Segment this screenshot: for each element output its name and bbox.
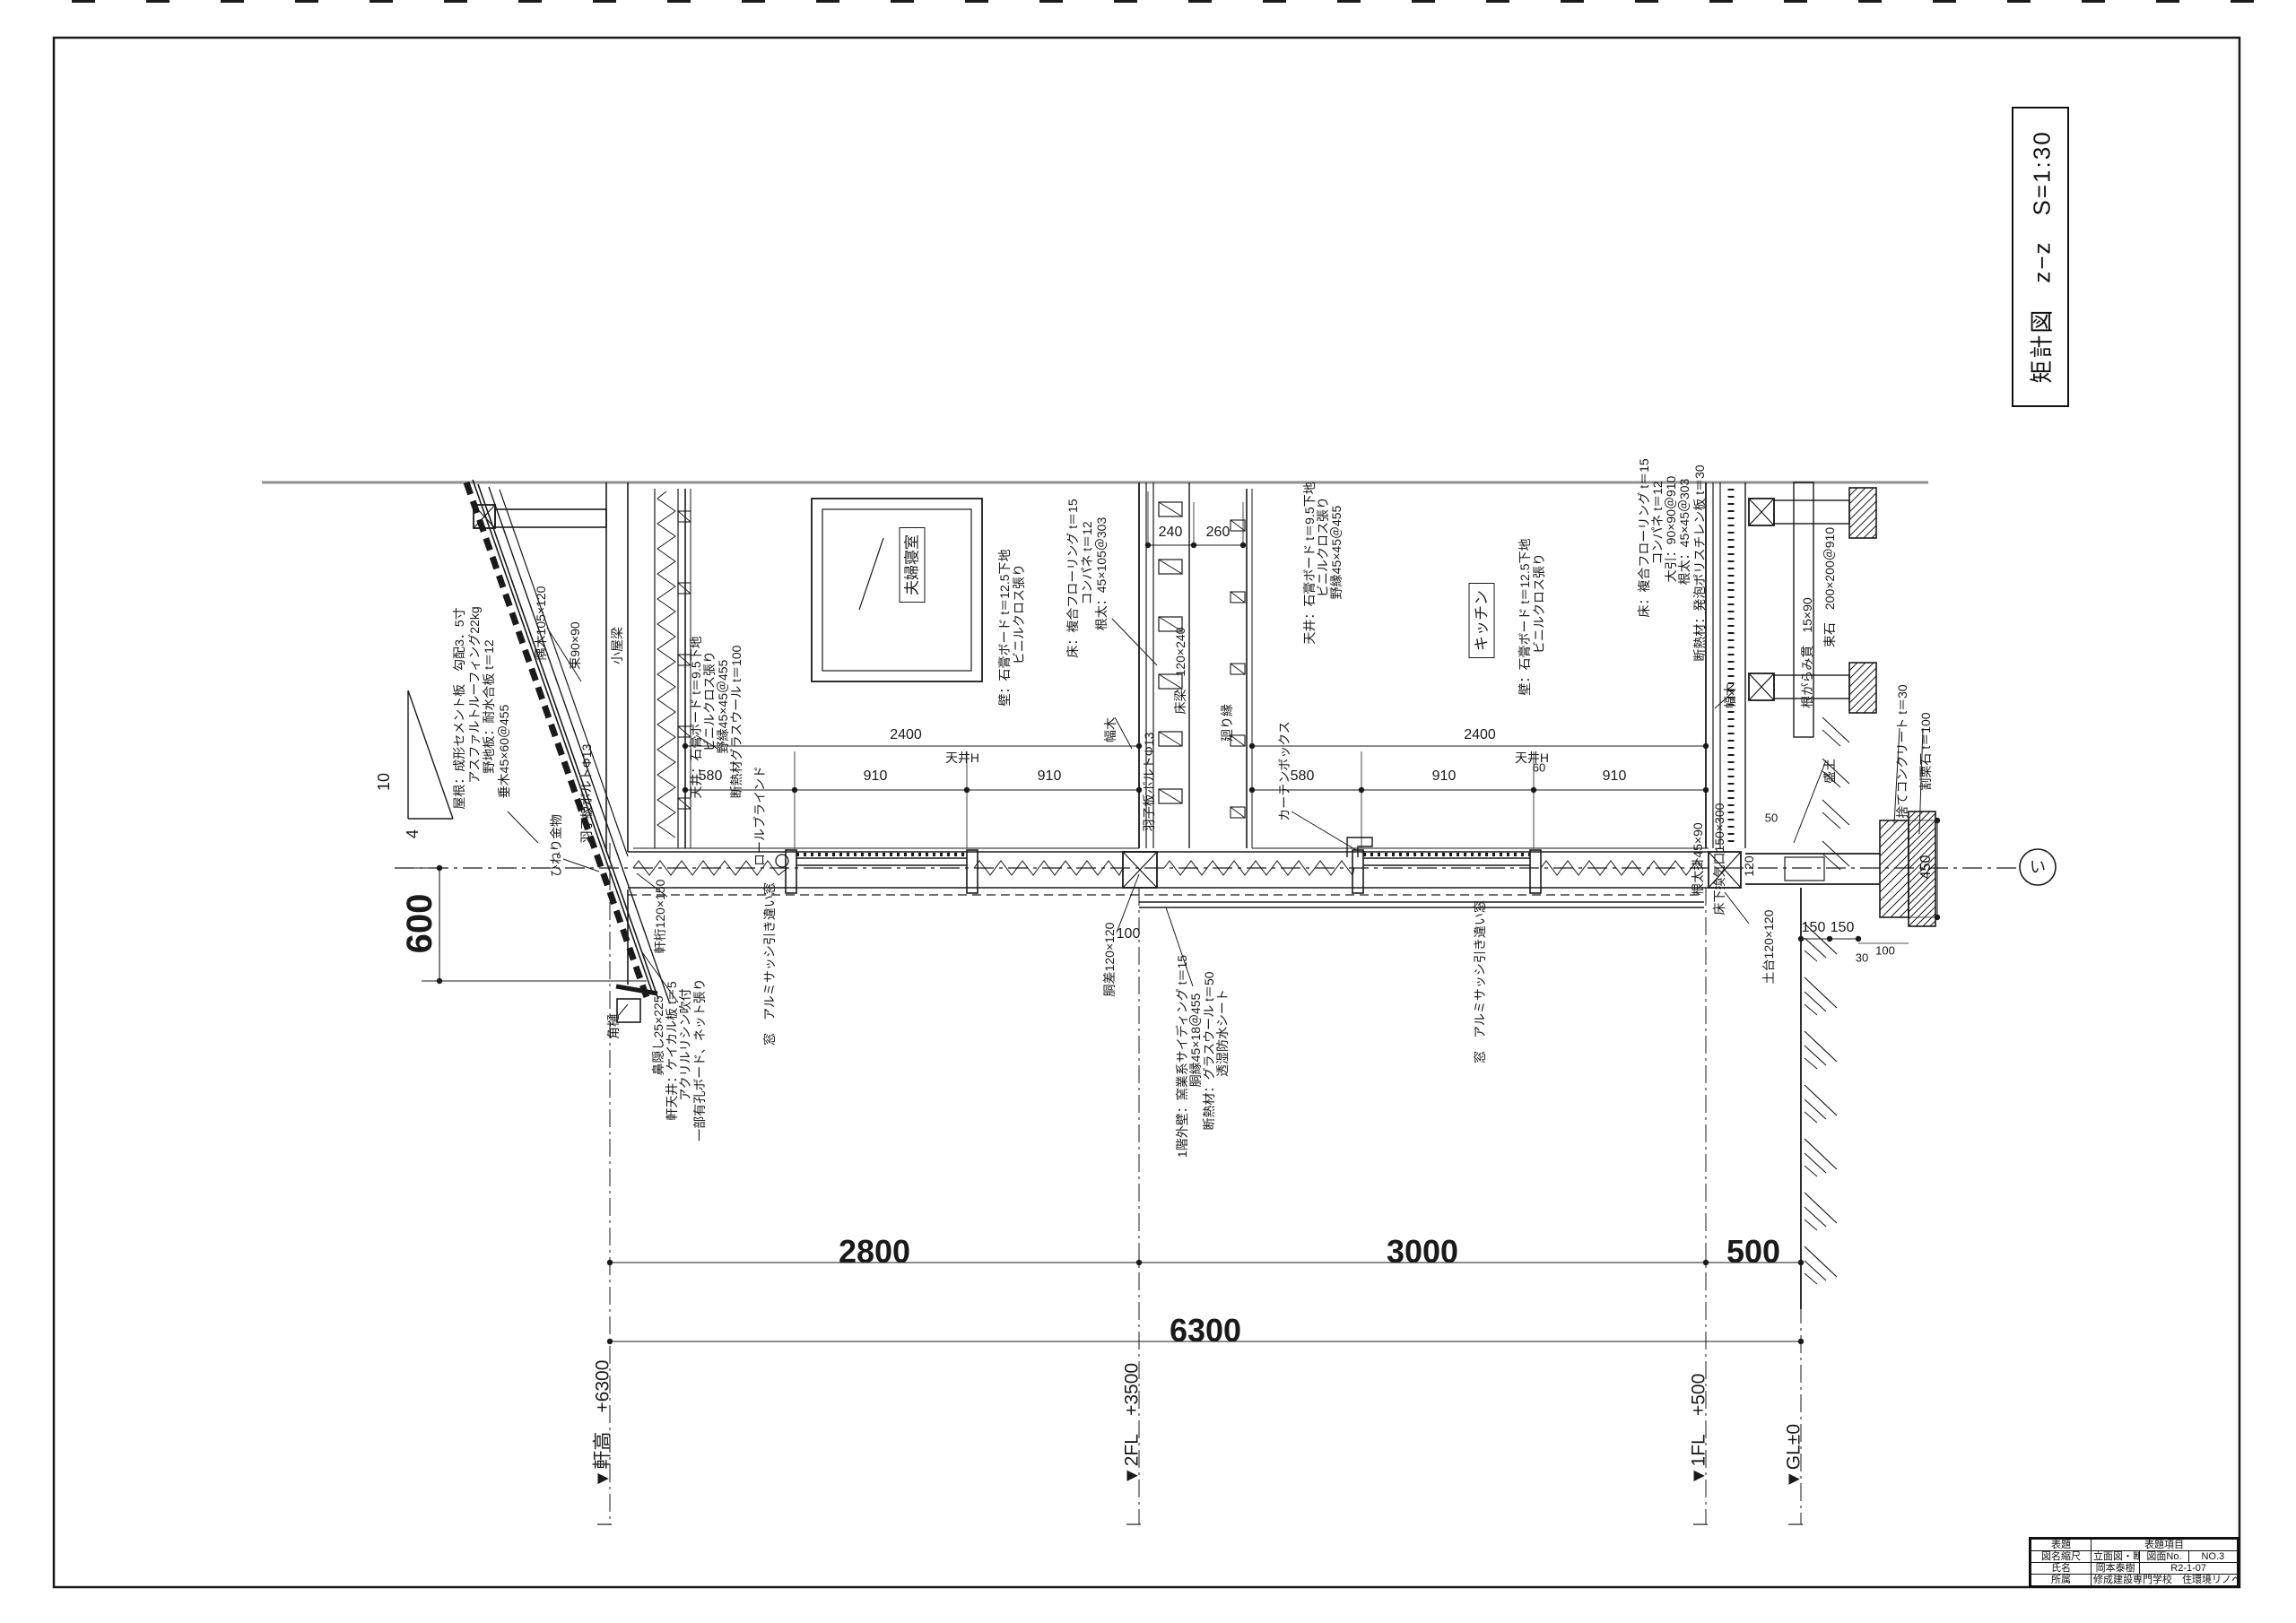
annotation-label: 床：複合フローリング t＝15	[1066, 499, 1079, 657]
annotation-label: 壁：石膏ボード t＝12.5下地	[998, 549, 1011, 706]
annotation-label: 盛土	[1823, 759, 1836, 784]
annotation-label: 大引：90×90＠910	[1665, 476, 1677, 583]
tb-value-cell: 表題項目	[2092, 1540, 2238, 1551]
annotation-label: 束90×90	[569, 621, 581, 669]
tb-value-cell: 修成建設専門学校 住環境リノベーション学科	[2092, 1575, 2238, 1586]
annotation-label: 根がらみ貫 15×90	[1801, 597, 1813, 707]
tb-value-cell: NO.3	[2188, 1551, 2237, 1563]
annotation-label: ▼軒高 +6300	[594, 1360, 613, 1488]
drawing-sheet: 矩計図 z−z S=1:30 屋根：成形セメント板 勾配3．5寸アスファルトルー…	[0, 0, 2296, 1623]
annotation-label: 窓 アルミサッシ引き違い窓	[1474, 900, 1486, 1063]
annotation-label: ▼GL±0	[1785, 1424, 1804, 1488]
annotation-label: 軒桁120×150	[654, 880, 666, 954]
annotation-label: 580	[699, 769, 723, 784]
annotation-label: 120	[1743, 855, 1755, 876]
annotation-label: 断熱材：発泡ポリスチレン板 t＝30	[1693, 464, 1706, 661]
tb-header-cell: 所属	[2031, 1575, 2092, 1586]
annotation-label: 910	[1038, 769, 1062, 784]
tb-value-cell: 岡本泰樹	[2092, 1563, 2140, 1575]
annotation-label: カーテンボックス	[1278, 721, 1291, 821]
annotation-label: 胴縁45×18＠455	[1189, 994, 1202, 1088]
annotation-label: ビニルクロス張り	[703, 651, 716, 751]
annotation-label: 廻り縁	[1221, 704, 1233, 742]
annotation-label: 鼻隠し25×225	[652, 995, 665, 1075]
annotation-label: 600	[402, 894, 438, 954]
annotation-label: 野縁45×45＠455	[717, 660, 729, 754]
tb-header-cell: 氏名	[2031, 1563, 2092, 1575]
tb-header-cell: 図面No.	[2140, 1551, 2188, 1563]
annotation-label: 窓 アルミサッシ引き違い窓	[763, 882, 776, 1046]
annotation-label: 260	[1206, 525, 1231, 540]
annotation-label: 450	[1919, 855, 1934, 880]
room-label: 夫婦寝室	[900, 527, 926, 603]
annotation-label: 床梁 120×240	[1174, 628, 1187, 715]
annotation-label: い	[2030, 859, 2046, 875]
annotation-label: 小屋梁	[611, 627, 623, 664]
annotation-label: 根太：45×105＠303	[1095, 517, 1108, 630]
annotation-label: 2400	[890, 728, 922, 742]
annotation-label: 野地板：耐水合板 t＝12	[483, 639, 495, 773]
annotation-label: 胴差120×120	[1103, 923, 1116, 997]
annotation-label: 床下換気口150×300	[1713, 803, 1726, 916]
annotation-label: 垂木45×60＠455	[498, 705, 510, 799]
annotation-label: 580	[1291, 769, 1315, 784]
annotation-label: 50	[1765, 812, 1778, 824]
annotation-label: 天井：石膏ボード t＝9.5下地	[1303, 482, 1316, 644]
annotation-label: 壁：石膏ボード t＝12.5下地	[1518, 538, 1531, 695]
annotation-label: ロールブラインド	[753, 766, 766, 866]
annotation-label: 1階外壁：窯業系サイディング t＝15	[1176, 955, 1188, 1158]
tb-value-cell: R2-1-07	[2140, 1563, 2238, 1575]
annotation-label: 屋根：成形セメント板 勾配3．5寸	[453, 607, 465, 809]
annotation-label: 3000	[1387, 1236, 1458, 1268]
tb-value-cell: 立面図・断面図	[2092, 1551, 2140, 1563]
annotation-label: 根太掛45×90	[1692, 822, 1704, 895]
annotation-label: 幅木	[1104, 717, 1117, 742]
annotation-label: 240	[1159, 525, 1183, 540]
annotation-label: 一部有孔ボード、ネット張り	[693, 978, 706, 1141]
annotation-label: 10	[376, 773, 392, 791]
annotation-label: 天井H	[945, 751, 979, 764]
annotation-label: アスファルトルーフィング22kg	[468, 606, 481, 783]
annotation-label: 軒天井：ケイカル板 t＝5	[665, 981, 678, 1120]
annotation-label: 床：複合フローリング t＝15	[1638, 458, 1650, 617]
annotation-label: 910	[1603, 769, 1627, 784]
annotation-label: 4	[404, 829, 421, 838]
annotation-label: ▼1FL +500	[1690, 1374, 1709, 1486]
annotation-label: 100	[1117, 927, 1141, 942]
annotation-label: 2400	[1464, 728, 1496, 742]
annotation-label: ビニルクロス張り	[1533, 553, 1545, 654]
annotation-label: 30	[1856, 952, 1868, 964]
annotation-label: 土台120×120	[1762, 910, 1775, 985]
annotation-label: 透湿防水シート	[1216, 989, 1229, 1077]
annotation-label: 150	[1802, 921, 1826, 935]
annotation-label: コンパネ t＝12	[1651, 481, 1664, 564]
annotation-label: 2800	[839, 1236, 910, 1268]
tb-header-cell: 表題	[2031, 1540, 2092, 1551]
annotation-label: 割栗石 t＝100	[1919, 712, 1932, 790]
annotation-label: 幅木	[1724, 683, 1736, 708]
title-block-table: 表題 表題項目 図名縮尺 立面図・断面図 図面No. NO.3 氏名 岡本泰樹 …	[2029, 1537, 2239, 1588]
annotation-label: 100	[1875, 945, 1895, 957]
annotation-label: 断熱材：グラスウール t＝50	[1203, 971, 1215, 1130]
annotation-label: 910	[1432, 769, 1457, 784]
annotation-label: アクリルリシン吹付	[679, 988, 691, 1100]
annotation-label: 捨てコンクリート t＝30	[1896, 684, 1909, 818]
annotation-label: コンパネ t＝12	[1081, 521, 1093, 604]
annotation-label: ビニルクロス張り	[1317, 497, 1329, 597]
annotation-label: 60	[1533, 762, 1545, 774]
drawing-title: 矩計図 z−z S=1:30	[2024, 130, 2057, 383]
annotation-label: ビニルクロス張り	[1013, 564, 1025, 664]
annotation-label: 断熱材グラスウール t＝100	[730, 646, 743, 799]
annotation-label: 羽子板ボルトΦ13	[580, 744, 593, 844]
annotation-label: 羽子板ボルトΦ13	[1143, 733, 1155, 832]
annotation-label: 6300	[1170, 1315, 1241, 1347]
annotation-label: 束石 200×200＠910	[1823, 527, 1836, 647]
annotation-label: 根太：45×45＠303	[1678, 479, 1691, 586]
annotation-label: 隅木105×120	[535, 586, 547, 661]
annotation-label: 150	[1831, 921, 1855, 935]
drawing-title-box: 矩計図 z−z S=1:30	[2012, 107, 2069, 407]
annotation-label: ひねり金物	[550, 814, 562, 877]
room-label: キッチン	[1469, 583, 1495, 658]
annotation-label: 500	[1726, 1236, 1780, 1268]
tb-header-cell: 図名縮尺	[2031, 1551, 2092, 1563]
annotation-label: 角樋	[607, 1014, 620, 1039]
annotation-label: ▼2FL +3500	[1123, 1363, 1142, 1485]
annotation-label: 910	[864, 769, 888, 784]
annotation-label: 野縁45×45＠455	[1330, 506, 1343, 600]
